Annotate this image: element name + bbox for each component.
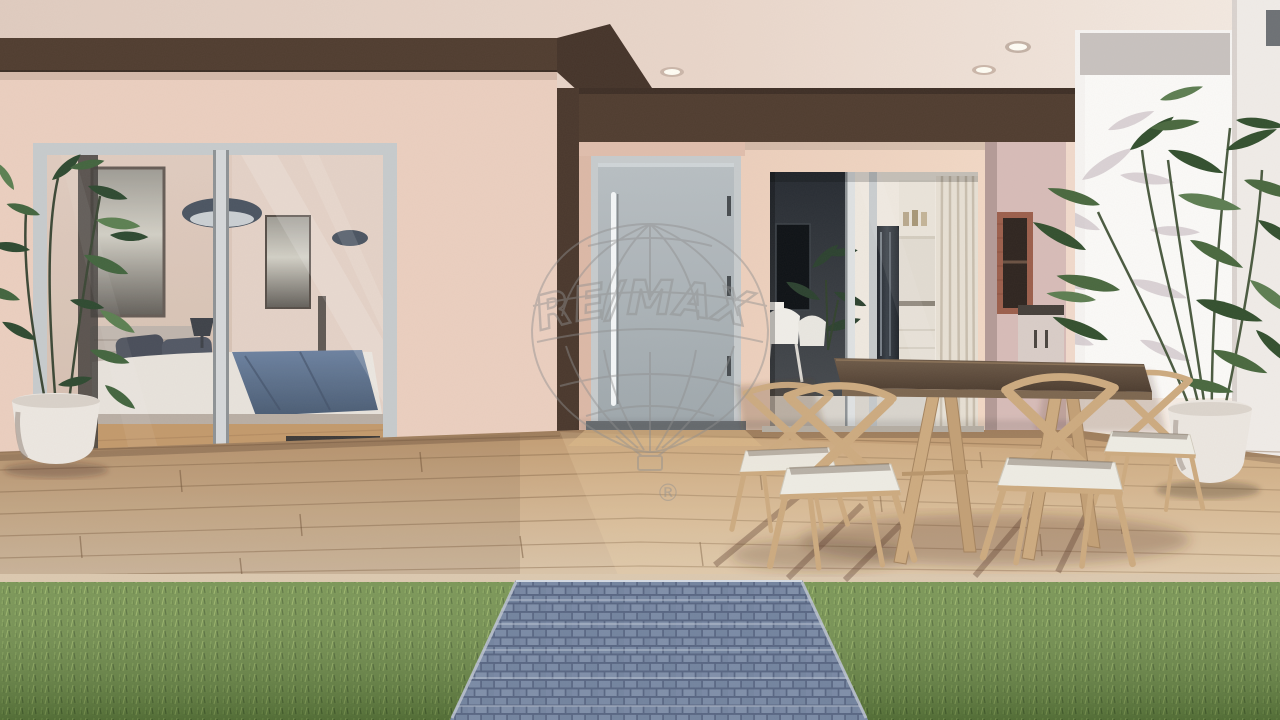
registered-mark: ® bbox=[656, 479, 680, 507]
terrace-render-scene: RE/MAX ® bbox=[0, 0, 1280, 720]
film-grain bbox=[0, 0, 1280, 720]
